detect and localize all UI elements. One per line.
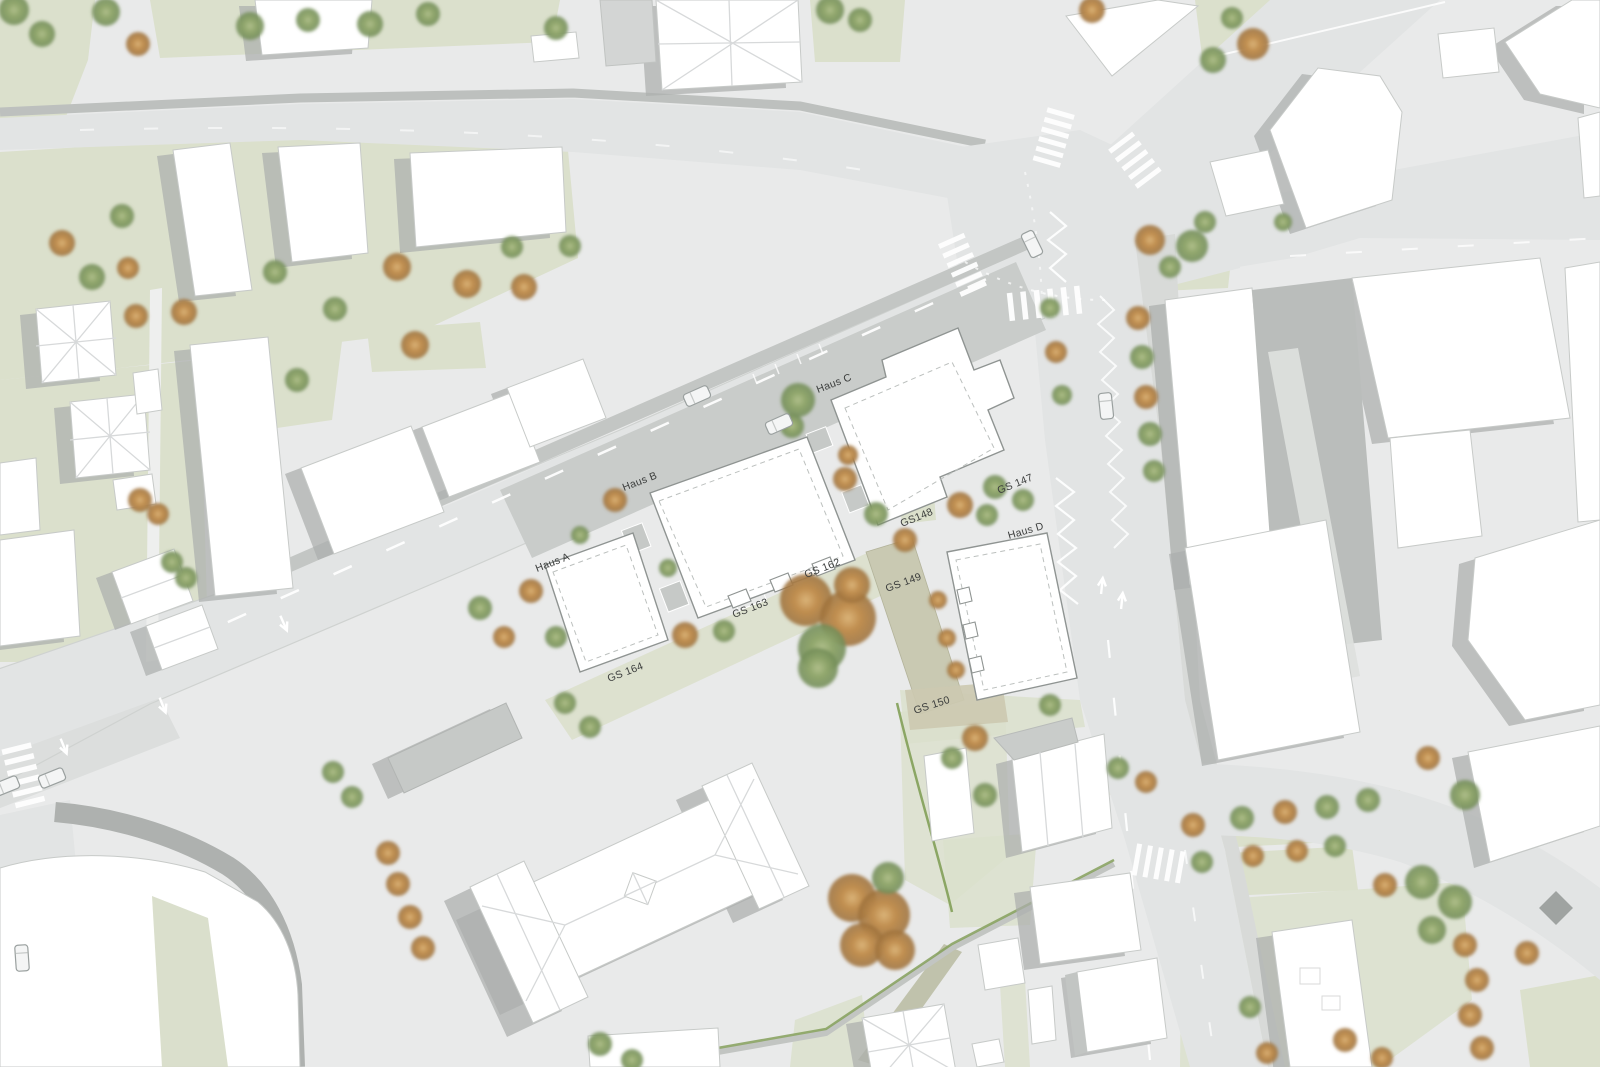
tree-green-icon — [545, 626, 567, 648]
tree-green-icon — [1039, 694, 1061, 716]
tree-autumn-icon — [493, 626, 515, 648]
tree-autumn-icon — [929, 591, 947, 609]
tree-autumn-icon — [1373, 873, 1397, 897]
tree-autumn-icon — [519, 579, 543, 603]
tree-green-icon — [864, 502, 888, 526]
tree-green-icon — [1138, 422, 1162, 446]
building-shed — [972, 1039, 1004, 1067]
tree-green-icon — [941, 747, 963, 769]
tree-green-icon — [1159, 256, 1181, 278]
tree-green-icon — [1221, 7, 1243, 29]
tree-autumn-icon — [947, 661, 965, 679]
tree-green-icon — [781, 383, 815, 417]
tree-green-icon — [79, 264, 105, 290]
tree-autumn-icon — [1256, 1042, 1278, 1064]
tree-green-icon — [501, 236, 523, 258]
tree-green-icon — [659, 559, 677, 577]
car-icon — [1098, 392, 1114, 419]
tree-green-icon — [976, 504, 998, 526]
tree-green-icon — [872, 862, 904, 894]
tree-green-icon — [559, 235, 581, 257]
tree-green-icon — [468, 596, 492, 620]
tree-autumn-icon — [1273, 800, 1297, 824]
tree-green-icon — [175, 567, 197, 589]
tree-green-icon — [1052, 385, 1072, 405]
tree-autumn-icon — [1286, 840, 1308, 862]
tree-autumn-icon — [1416, 746, 1440, 770]
tree-autumn-icon — [411, 936, 435, 960]
tree-autumn-icon — [147, 503, 169, 525]
tree-autumn-icon — [383, 253, 411, 281]
tree-autumn-icon — [376, 841, 400, 865]
tree-green-icon — [1107, 757, 1129, 779]
tree-autumn-icon — [672, 622, 698, 648]
tree-autumn-icon — [511, 274, 537, 300]
building-annex — [600, 0, 656, 66]
tree-autumn-icon — [453, 270, 481, 298]
tree-green-icon — [579, 716, 601, 738]
tree-green-icon — [1176, 230, 1208, 262]
tree-green-icon — [544, 16, 568, 40]
tree-green-icon — [263, 260, 287, 284]
tree-autumn-icon — [1453, 933, 1477, 957]
tree-green-icon — [713, 620, 735, 642]
tree-green-icon — [973, 783, 997, 807]
tree-autumn-icon — [1465, 968, 1489, 992]
tree-autumn-icon — [875, 930, 915, 970]
tree-green-icon — [1450, 780, 1480, 810]
site-plan: Haus AHaus BHaus CHaus DGS 147GS148GS 14… — [0, 0, 1600, 1067]
tree-green-icon — [29, 21, 55, 47]
tree-autumn-icon — [126, 32, 150, 56]
building — [1028, 986, 1056, 1044]
tree-green-icon — [1040, 298, 1060, 318]
building-perimeter-block — [1352, 258, 1570, 438]
tree-green-icon — [236, 12, 264, 40]
tree-autumn-icon — [1045, 341, 1067, 363]
tree-green-icon — [416, 2, 440, 26]
tree-green-icon — [1012, 489, 1034, 511]
building-annex — [1438, 28, 1499, 78]
building — [978, 938, 1025, 990]
tree-autumn-icon — [1333, 1028, 1357, 1052]
tree-autumn-icon — [833, 467, 857, 491]
tree-autumn-icon — [1242, 845, 1264, 867]
tree-green-icon — [1356, 788, 1380, 812]
tree-green-icon — [1438, 885, 1472, 919]
tree-autumn-icon — [1135, 771, 1157, 793]
tree-autumn-icon — [1126, 306, 1150, 330]
tree-autumn-icon — [1181, 813, 1205, 837]
tree-green-icon — [554, 692, 576, 714]
tree-autumn-icon — [401, 331, 429, 359]
tree-green-icon — [1143, 460, 1165, 482]
tree-green-icon — [1191, 851, 1213, 873]
tree-green-icon — [285, 368, 309, 392]
tree-autumn-icon — [1135, 225, 1165, 255]
tree-green-icon — [1200, 47, 1226, 73]
tree-green-icon — [1315, 795, 1339, 819]
building — [0, 530, 80, 646]
building-slab — [410, 147, 566, 247]
building-slab — [278, 143, 368, 262]
tree-autumn-icon — [398, 905, 422, 929]
tree-autumn-icon — [1237, 28, 1269, 60]
tree-autumn-icon — [1470, 1036, 1494, 1060]
tree-autumn-icon — [962, 725, 988, 751]
building — [133, 369, 162, 414]
tree-green-icon — [1130, 345, 1154, 369]
tree-green-icon — [1239, 996, 1261, 1018]
tree-autumn-icon — [1134, 385, 1158, 409]
tree-green-icon — [323, 297, 347, 321]
tree-autumn-icon — [893, 528, 917, 552]
tree-green-icon — [296, 8, 320, 32]
building — [0, 458, 40, 535]
tree-green-icon — [1405, 865, 1439, 899]
tree-autumn-icon — [838, 445, 858, 465]
tree-green-icon — [341, 786, 363, 808]
building — [1390, 430, 1482, 548]
tree-green-icon — [848, 8, 872, 32]
tree-autumn-icon — [128, 488, 152, 512]
tree-green-icon — [571, 526, 589, 544]
tree-green-icon — [1194, 211, 1216, 233]
tree-green-icon — [1324, 835, 1346, 857]
tree-green-icon — [1274, 213, 1292, 231]
tree-autumn-icon — [1515, 941, 1539, 965]
tree-green-icon — [1230, 806, 1254, 830]
site-plan-canvas: Haus AHaus BHaus CHaus DGS 147GS148GS 14… — [0, 0, 1600, 1067]
tree-autumn-icon — [386, 872, 410, 896]
tree-autumn-icon — [938, 629, 956, 647]
building — [1077, 958, 1167, 1052]
tree-green-icon — [798, 648, 838, 688]
tree-green-icon — [1418, 916, 1446, 944]
tree-autumn-icon — [117, 257, 139, 279]
tree-green-icon — [588, 1032, 612, 1056]
car-icon — [15, 945, 30, 972]
tree-autumn-icon — [834, 567, 870, 603]
tree-green-icon — [357, 11, 383, 37]
tree-autumn-icon — [1458, 1003, 1482, 1027]
tree-autumn-icon — [49, 230, 75, 256]
tree-green-icon — [322, 761, 344, 783]
tree-green-icon — [110, 204, 134, 228]
tree-autumn-icon — [947, 492, 973, 518]
tree-autumn-icon — [171, 299, 197, 325]
building — [1030, 873, 1141, 964]
tree-autumn-icon — [124, 304, 148, 328]
